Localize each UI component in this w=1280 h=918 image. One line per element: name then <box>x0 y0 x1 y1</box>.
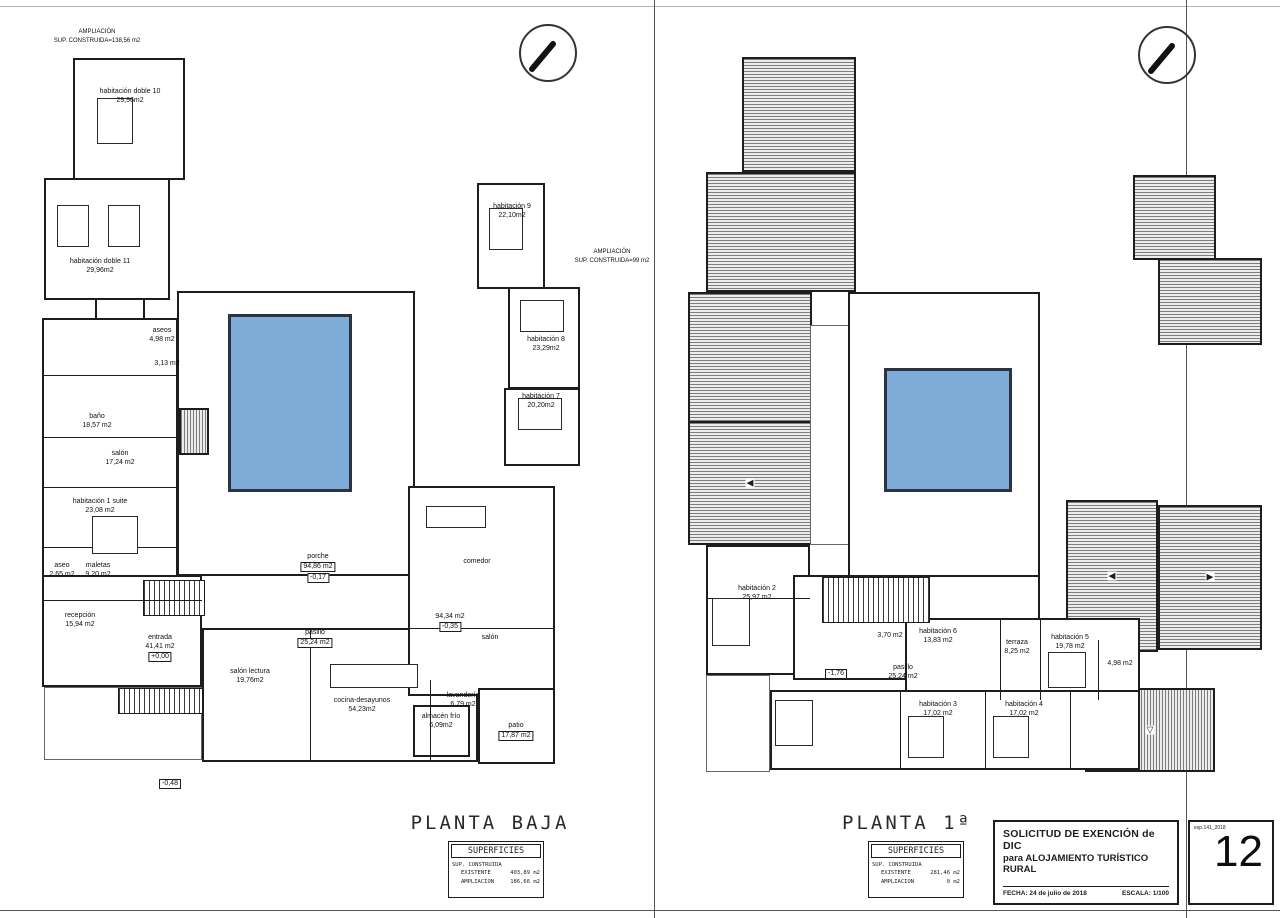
room-name: habitación 8 <box>527 336 565 344</box>
room-name: recepción <box>65 612 95 620</box>
room-label-bano-498: 4,98 m2 <box>1107 660 1132 668</box>
p1-stairs <box>822 577 930 623</box>
room-name: baño <box>89 413 105 421</box>
p1-terrace-strip <box>810 325 850 545</box>
room-label-salon-comedor: salón <box>482 634 499 642</box>
frame-center-divider <box>654 0 655 918</box>
room-label-bano: baño 18,57 m2 <box>82 413 111 430</box>
pb-entry-stairs <box>143 580 205 616</box>
room-area: 6,09m2 <box>429 722 452 730</box>
sup-value: 281,46 m2 <box>930 869 960 877</box>
room-name: aseos <box>153 327 172 335</box>
room-name: aseo <box>54 562 69 570</box>
sup-label: AMPLIACION <box>881 878 914 886</box>
sup-label: AMPLIACION <box>461 878 494 886</box>
room-label-hab7: habitación 7 20,20m2 <box>522 393 560 410</box>
room-label-hab8: habitación 8 23,29m2 <box>527 336 565 353</box>
bed <box>908 716 944 758</box>
room-name: lavandería <box>447 692 480 700</box>
north-arrow-icon <box>517 22 579 84</box>
room-name: cocina-desayunos <box>334 697 390 705</box>
room-label-aseo-265: aseo 2,65 m2 <box>49 562 74 579</box>
sup-value: 403,89 m2 <box>510 869 540 877</box>
room-name: maletas <box>86 562 111 570</box>
superficies-box-primera: SUPERFICIES SUP. CONSTRUIDA EXISTENTE 28… <box>868 841 964 898</box>
bed <box>57 205 89 247</box>
bed <box>92 516 138 554</box>
fecha-value: 24 de julio de 2018 <box>1029 890 1086 897</box>
frame-bottom-line <box>0 910 1280 911</box>
room-label-cocina: cocina-desayunos 54,23m2 <box>334 697 390 714</box>
drawing-sheet: AMPLIACIÓN SUP. CONSTRUIDA=138,56 m2 AMP… <box>0 0 1280 918</box>
room-label-hab5: habitación 5 19,78 m2 <box>1051 634 1089 651</box>
room-label-hab-doble-10: habitación doble 10 29,96m2 <box>100 88 161 105</box>
p1-roof <box>1158 258 1262 345</box>
room-label-hab2: habitación 2 25,97 m2 <box>738 585 776 602</box>
room-area: 54,23m2 <box>348 706 375 714</box>
superficies-heading: SUPERFICIES <box>871 844 961 858</box>
level-marker: +0,00 <box>148 652 172 662</box>
plan-baja-title: PLANTA BAJA <box>411 812 570 834</box>
room-name: salón <box>112 450 129 458</box>
room-name: salón lectura <box>230 668 270 676</box>
pb-wall-line <box>310 628 311 762</box>
room-label-comedor: comedor <box>463 558 490 566</box>
superficies-group: SUP. CONSTRUIDA <box>872 861 960 869</box>
room-label-hab3: habitación 3 17,02 m2 <box>919 701 957 718</box>
escala: ESCALA: 1/100 <box>1122 890 1169 897</box>
superficies-row: AMPLIACION 186,66 m2 <box>452 878 540 886</box>
note-line: SUP. CONSTRUIDA=99 m2 <box>575 257 650 266</box>
room-area: 8,25 m2 <box>1004 648 1029 656</box>
room-label-terraza: terraza 8,25 m2 <box>1004 639 1029 656</box>
room-name: porche <box>307 553 328 561</box>
room-area: 3,70 m2 <box>877 632 902 640</box>
room-area: 20,20m2 <box>527 402 554 410</box>
room-area: 25,24 m2 <box>297 638 332 648</box>
room-area: 9,20 m2 <box>85 571 110 579</box>
pb-terrace-stairs <box>118 688 203 714</box>
room-label-hab1-suite: habitación 1 suite 23,08 m2 <box>73 498 127 515</box>
room-label-almacen-frio: almacén frío 6,09m2 <box>422 713 461 730</box>
room-name: pasillo <box>893 664 913 672</box>
superficies-row: EXISTENTE 281,46 m2 <box>872 869 960 877</box>
kitchen-table <box>330 664 418 688</box>
room-name: habitación doble 11 <box>70 258 130 266</box>
p1-porch <box>706 675 770 772</box>
room-name: entrada <box>148 634 172 642</box>
p1-wall-line <box>900 690 901 770</box>
room-label-maletas: maletas 9,20 m2 <box>85 562 110 579</box>
level-marker: -0,35 <box>439 622 461 632</box>
pb-fireplace <box>179 408 209 455</box>
sup-label: EXISTENTE <box>881 869 911 877</box>
room-label-pasillo-p1: pasillo 25,24 m2 <box>888 664 917 681</box>
room-area: 3,13 m2 <box>154 360 179 368</box>
room-name: pasillo <box>305 629 325 637</box>
room-area: 17,24 m2 <box>105 459 134 467</box>
room-name: almacén frío <box>422 713 461 721</box>
room-label-entrada: entrada 41,41 m2 +0,00 <box>145 634 174 662</box>
room-area: 2,65 m2 <box>49 571 74 579</box>
p1-wall-line <box>1040 618 1041 700</box>
room-area: 29,96m2 <box>116 97 143 105</box>
room-name: patio <box>508 722 523 730</box>
note-line: AMPLIACIÓN <box>54 28 140 37</box>
sup-value: 186,66 m2 <box>510 878 540 886</box>
room-label-aseos: aseos 4,98 m2 <box>149 327 174 344</box>
pb-wall-line <box>42 487 178 488</box>
exterior-level: -0,48 <box>159 779 181 789</box>
pb-pool <box>228 314 352 492</box>
room-name: habitación 9 <box>493 203 531 211</box>
room-name: salón <box>482 634 499 642</box>
superficies-box-baja: SUPERFICIES SUP. CONSTRUIDA EXISTENTE 40… <box>448 841 544 898</box>
bed <box>1048 652 1086 688</box>
room-area: 22,10m2 <box>498 212 525 220</box>
frame-top-line <box>0 6 1280 7</box>
title-block-footer: FECHA: 24 de julio de 2018 ESCALA: 1/100 <box>1003 886 1169 897</box>
p1-roof <box>688 292 812 423</box>
room-label-hab6: habitación 6 13,83 m2 <box>919 628 957 645</box>
pasillo-level: -1,76 <box>825 669 847 679</box>
pb-wall-line <box>408 628 555 629</box>
pb-ampliacion-note-top: AMPLIACIÓN SUP. CONSTRUIDA=138,56 m2 <box>54 28 140 46</box>
sheet-number-box: exp.141_2018 12 <box>1188 820 1274 905</box>
title-block: SOLICITUD DE EXENCIÓN de DIC para ALOJAM… <box>993 820 1179 905</box>
p1-wall-line <box>1098 640 1099 700</box>
room-area: 4,98 m2 <box>1107 660 1132 668</box>
room-label-pasillo: pasillo 25,24 m2 <box>297 629 332 648</box>
room-area: 23,29m2 <box>532 345 559 353</box>
p1-pool <box>884 368 1012 492</box>
bed <box>712 598 750 646</box>
level-marker: -0,48 <box>159 779 181 789</box>
fecha-label: FECHA: <box>1003 890 1028 897</box>
room-area: 15,94 m2 <box>65 621 94 629</box>
p1-wall-line <box>1070 690 1071 770</box>
bed <box>993 716 1029 758</box>
pb-wall-line <box>42 375 178 376</box>
room-area: 13,83 m2 <box>923 637 952 645</box>
sheet-number: 12 <box>1214 830 1263 874</box>
room-label-patio: patio 17,87 m2 <box>498 722 533 741</box>
pb-wall-line <box>42 437 178 438</box>
room-area: 94,34 m2 <box>435 613 464 621</box>
room-area: 17,87 m2 <box>498 731 533 741</box>
sup-value: 0 m2 <box>947 878 960 886</box>
p1-wall-line <box>985 690 986 770</box>
room-name: habitación 3 <box>919 701 957 709</box>
bed <box>108 205 140 247</box>
room-label-hab-doble-11: habitación doble 11 29,96m2 <box>70 258 130 275</box>
plan-primera-title: PLANTA 1ª <box>842 812 972 834</box>
room-area: 23,08 m2 <box>85 507 114 515</box>
superficies-row: EXISTENTE 403,89 m2 <box>452 869 540 877</box>
room-name: habitación 5 <box>1051 634 1089 642</box>
bed <box>520 300 564 332</box>
superficies-row: AMPLIACION 0 m2 <box>872 878 960 886</box>
room-label-lavanderia: lavandería 6,79 m2 <box>447 692 480 709</box>
note-line: AMPLIACIÓN <box>575 248 650 257</box>
room-area: 25,97 m2 <box>742 594 771 602</box>
roof-slope-arrow-icon: ▶ <box>1206 573 1215 582</box>
fecha: FECHA: 24 de julio de 2018 <box>1003 890 1087 897</box>
room-area: 18,57 m2 <box>82 422 111 430</box>
room-label-salon-lectura: salón lectura 19,76m2 <box>230 668 270 685</box>
p1-roof <box>1133 175 1216 260</box>
room-area: 19,76m2 <box>236 677 263 685</box>
room-name: comedor <box>463 558 490 566</box>
north-arrow-icon <box>1136 24 1198 86</box>
room-area: 19,78 m2 <box>1055 643 1084 651</box>
room-label-hab9: habitación 9 22,10m2 <box>493 203 531 220</box>
room-area: 25,24 m2 <box>888 673 917 681</box>
p1-roof <box>742 57 856 172</box>
p1-roof <box>706 172 856 292</box>
pb-wall-line <box>42 600 202 601</box>
roof-slope-arrow-icon: ◀ <box>1108 572 1117 581</box>
room-area: 29,96m2 <box>86 267 113 275</box>
level-marker: -1,76 <box>825 669 847 679</box>
room-area: 4,98 m2 <box>149 336 174 344</box>
level-marker: -0,17 <box>307 573 329 583</box>
room-label-aseo-313: 3,13 m2 <box>154 360 179 368</box>
room-label-hab4: habitación 4 17,02 m2 <box>1005 701 1043 718</box>
room-name: habitación 1 suite <box>73 498 127 506</box>
sup-label: EXISTENTE <box>461 869 491 877</box>
escala-label: ESCALA: <box>1122 890 1151 897</box>
pb-ampliacion-note-right: AMPLIACIÓN SUP. CONSTRUIDA=99 m2 <box>575 248 650 266</box>
room-label-porche: porche 94,86 m2 -0,17 <box>300 553 335 583</box>
room-name: habitación 4 <box>1005 701 1043 709</box>
roof-slope-arrow-icon: ▽ <box>1146 726 1155 735</box>
room-area: 17,02 m2 <box>923 710 952 718</box>
frame-right-line <box>1186 0 1187 918</box>
room-area: 94,86 m2 <box>300 562 335 572</box>
note-line: SUP. CONSTRUIDA=138,56 m2 <box>54 37 140 46</box>
superficies-heading: SUPERFICIES <box>451 844 541 858</box>
room-name: terraza <box>1006 639 1028 647</box>
bed <box>775 700 813 746</box>
room-area: 41,41 m2 <box>145 643 174 651</box>
project-title-line1: SOLICITUD DE EXENCIÓN de DIC <box>1003 828 1169 852</box>
escala-value: 1/100 <box>1153 890 1169 897</box>
room-label-recepcion: recepción 15,94 m2 <box>65 612 95 629</box>
project-title-line2: para ALOJAMIENTO TURÍSTICO RURAL <box>1003 853 1169 875</box>
superficies-group: SUP. CONSTRUIDA <box>452 861 540 869</box>
room-label-salon: salón 17,24 m2 <box>105 450 134 467</box>
p1-wall-line <box>1000 618 1001 700</box>
room-name: habitación 7 <box>522 393 560 401</box>
roof-slope-arrow-icon: ◀ <box>746 479 755 488</box>
dining-table <box>426 506 486 528</box>
room-name: habitación doble 10 <box>100 88 161 96</box>
comedor-area-level: 94,34 m2 -0,35 <box>435 613 464 632</box>
room-area: 17,02 m2 <box>1009 710 1038 718</box>
room-area: 6,79 m2 <box>450 701 475 709</box>
room-name: habitación 6 <box>919 628 957 636</box>
room-name: habitación 2 <box>738 585 776 593</box>
room-label-bano-370: 3,70 m2 <box>877 632 902 640</box>
